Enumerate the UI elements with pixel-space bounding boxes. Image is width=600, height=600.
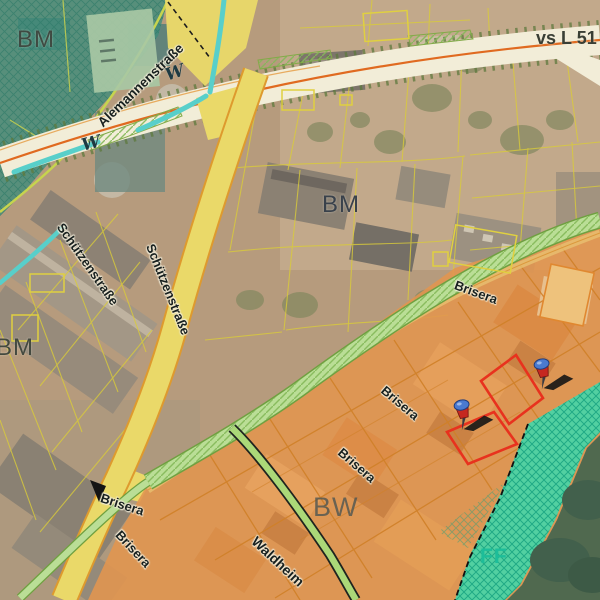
label-zone-bm-left: BM: [0, 336, 34, 360]
map-graphics: [0, 0, 600, 600]
label-zone-bm-topleft: BM: [17, 28, 55, 52]
label-zone-ff: FF: [480, 546, 508, 567]
label-route-l51: vs L 51: [536, 29, 597, 47]
water-symbol: W: [80, 134, 103, 155]
map-canvas[interactable]: BM vs L 51 Alemannenstraße W W Schützens…: [0, 0, 600, 600]
label-zone-bw: BW: [313, 494, 359, 521]
label-zone-bm-center: BM: [322, 193, 360, 217]
